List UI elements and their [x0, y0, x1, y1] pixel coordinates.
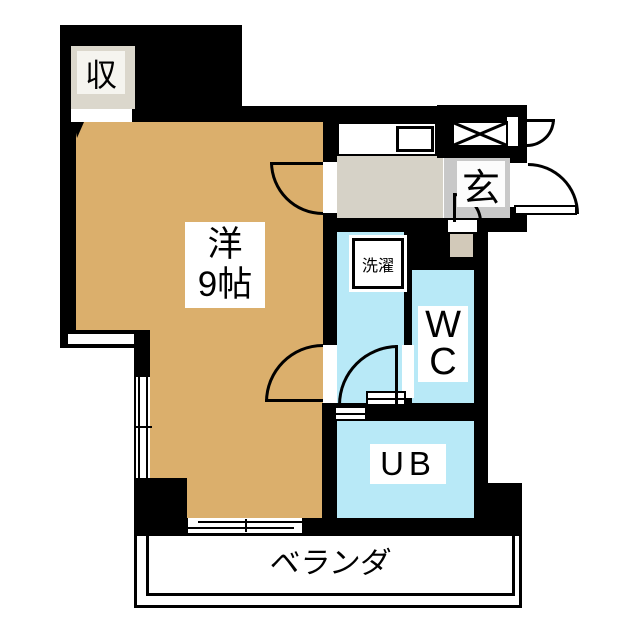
living-label-line1: 洋: [207, 225, 242, 265]
closet-opening: [71, 109, 132, 122]
wall-left-upper: [60, 122, 76, 348]
laundry-label-text: 洗濯: [362, 252, 394, 276]
balcony-sliding-door: [188, 518, 302, 533]
wall-top-band: [242, 106, 450, 122]
toilet-label: W C: [418, 306, 468, 382]
balcony-label: ベランダ: [143, 538, 518, 582]
window-slot-left-horizontal: [68, 334, 134, 344]
closet-label: 収: [77, 51, 125, 94]
window-center-tick: [134, 426, 152, 428]
pipe-shaft-x-icon: [452, 121, 508, 147]
kitchen-sink: [396, 126, 434, 152]
door-jamb-kitchen: [323, 162, 337, 213]
bath-door-bar-left: [334, 406, 367, 421]
closet-box: 収: [71, 46, 135, 109]
wall-right-lower: [474, 232, 488, 483]
toilet-label-line1: W: [425, 307, 461, 344]
toilet-label-line2: C: [429, 344, 456, 381]
door-jamb-washroom: [323, 345, 337, 403]
wall-mid-middle: [323, 213, 337, 345]
wall-mid-upper: [323, 122, 337, 162]
bath-door-bar-line: [336, 413, 365, 415]
wall-bottom: [134, 518, 474, 533]
slider-center-tick: [245, 519, 247, 532]
slider-line-lower: [188, 527, 294, 529]
entrance-label-text: 玄: [462, 157, 500, 212]
window-left-vertical: [136, 377, 150, 478]
entrance-label: 玄: [457, 161, 505, 207]
entry-door-leaf: [514, 205, 577, 215]
wall-bottomright-block: [474, 483, 522, 533]
laundry-box: 洗濯: [352, 238, 404, 289]
closet-label-text: 収: [85, 50, 117, 96]
kitchen-floor: [337, 156, 443, 218]
bath-label-text: UB: [380, 445, 436, 483]
wall-below-kitchen-band: [330, 218, 527, 232]
living-room-label: 洋 9帖: [185, 222, 265, 308]
meterbox-door-arc-icon: [527, 119, 555, 147]
bath-label: UB: [370, 444, 446, 484]
entrance-step-box: [450, 234, 473, 257]
slider-line-upper: [198, 521, 302, 523]
living-label-line2: 9帖: [198, 265, 252, 305]
entry-door-jamb: [510, 163, 527, 207]
meterbox-jamb: [507, 117, 518, 146]
floor-plan: ベランダ 収 洋 9帖 玄 洗濯 W C UB: [0, 0, 640, 640]
